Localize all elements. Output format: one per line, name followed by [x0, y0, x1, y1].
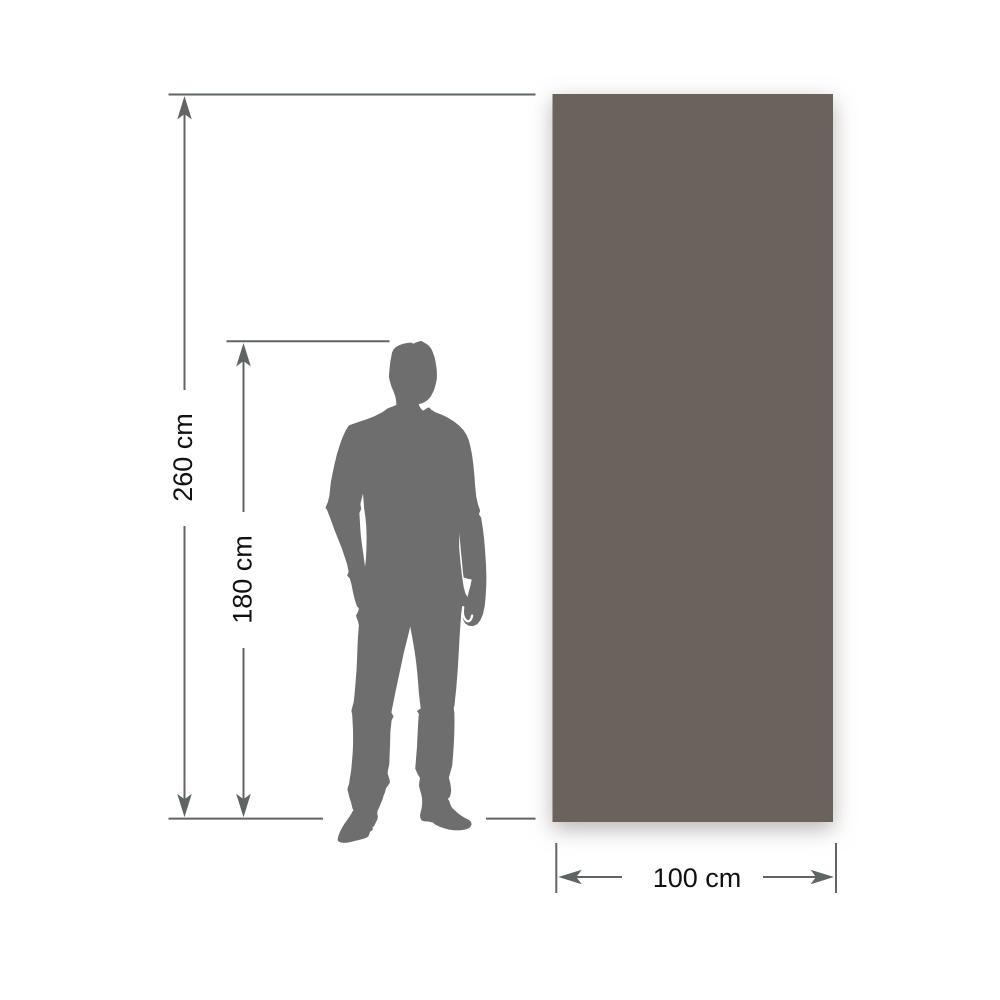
svg-text:260 cm: 260 cm	[168, 413, 198, 502]
svg-text:180 cm: 180 cm	[228, 535, 258, 624]
svg-text:100 cm: 100 cm	[653, 863, 742, 893]
